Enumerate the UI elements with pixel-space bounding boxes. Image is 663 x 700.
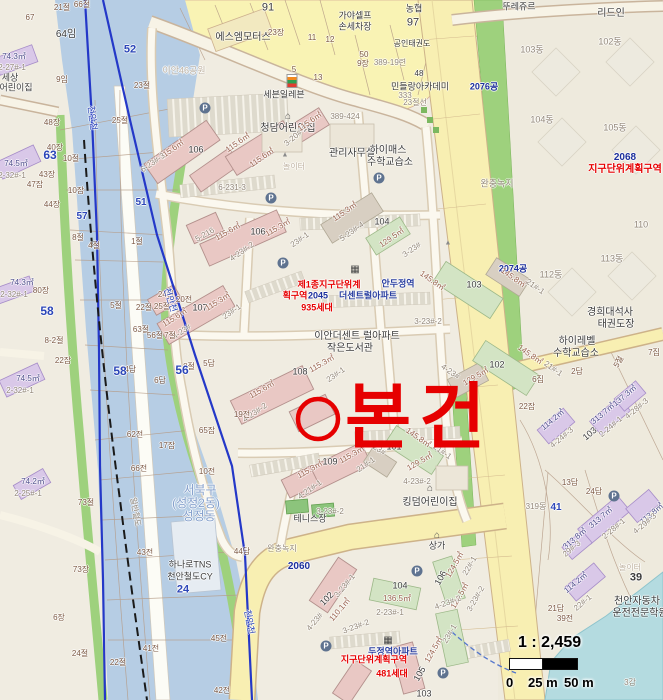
map-label: 공인태권도 [394,40,431,48]
map-label: 39 [630,573,642,584]
map-label: 더센트럴아파트 [339,292,397,301]
map-label: 2060 [288,562,310,572]
seven-eleven-icon [287,74,298,88]
map-label: 2076공 [470,83,498,92]
map-label: 9임 [56,76,68,84]
map-label: 319동 [526,503,547,511]
map-label: 104동 [530,116,553,125]
map-label: 2-23#-1 [376,609,404,617]
map-label: 천안천 [86,105,98,131]
map-label: 2-27#-1 [0,64,26,72]
parking-icon: P [200,103,211,114]
map-label: 하이레벨 [559,337,596,347]
map-label: 22잡 [55,357,71,365]
map-label: 4절 [88,242,100,250]
map-canvas[interactable]: 9166절21절6764임에스엠모터스가야셀프손세차장농협97뚜레쥬르리드인공인… [0,0,663,700]
map-label: 2045 [308,292,328,301]
house-icon: ⌂ [434,531,440,541]
map-label: 7절 [164,332,176,340]
building-icon: ▦ [350,265,359,275]
map-label: 20전 [176,296,192,304]
map-label: 11 [308,34,316,42]
map-label: 64임 [56,30,76,40]
map-label: 13답 [562,479,578,487]
map-label: 천안철도CY [167,573,213,582]
scale-tick-25: 25 m [528,675,558,690]
map-label: 어린이집 [0,84,33,93]
map-label: 108 [292,368,307,377]
map-label: 58 [113,365,126,377]
house-icon: ⌂ [285,112,291,122]
map-label: 12 [326,36,335,44]
house-icon: ⌂ [427,484,433,494]
scale-tick-0: 0 [506,675,513,690]
scale-segment-white [509,658,543,670]
map-label: 21절 [54,4,70,12]
map-label: 25절 [112,117,128,125]
map-label: 리드인 [597,9,625,19]
subject-annotation: 본건 [345,378,585,460]
map-label: 389-424 [330,113,359,121]
map-label: 24 [177,585,189,596]
map-label: 102 [489,361,504,370]
parking-icon: P [438,668,449,679]
map-label: 5절 [110,302,122,310]
map-label: 74.3㎡ [2,53,26,61]
map-label: 56 [175,364,188,376]
map-label: 5 [292,66,296,74]
map-label: 43전 [137,549,153,557]
map-label: 놀이터 [283,163,305,171]
map-label: 63 [43,149,56,161]
map-label: 가야셀프 [338,12,371,21]
map-label: 80장 [33,287,49,295]
map-label: 2답 [571,368,583,376]
map-label: 73장 [73,566,89,574]
map-label: 2-25#-1 [14,490,42,498]
map-label: 17잡 [159,442,175,450]
map-label: 104 [374,218,389,227]
map-label: 102동 [598,38,621,47]
map-label: 66전 [131,465,147,473]
map-label: 106 [188,146,203,155]
map-label: 22절 [136,304,152,312]
map-label: 58 [40,305,53,317]
map-label: 24절 [72,650,88,658]
map-label: 74.5㎡ [4,160,28,168]
map-label: 56절 [147,332,163,340]
map-label: 안두정역 [381,280,414,289]
playground-icon: ▲ [445,240,452,247]
map-label: 73절 [78,499,94,507]
map-label: 상가 [429,542,446,551]
map-label: 481세대 [376,670,408,679]
map-label: 74.2㎡ [21,478,45,486]
map-label: 지구단위계획구역 [588,165,662,175]
map-label: 하이매스 [370,146,407,156]
map-label: 22절 [110,659,126,667]
map-label: 103 [416,690,431,699]
map-label: 39전 [557,615,573,623]
map-label: 경희대석사 [587,308,633,318]
map-label: 6-231-3 [218,184,246,192]
map-label: 태권도장 [598,320,635,330]
map-label: 24답 [586,488,602,496]
map-label: 66절 [74,1,90,9]
map-label: 136.5㎡ [383,595,411,603]
map-label: 389-19련 [374,59,406,67]
map-label: 109 [322,458,337,467]
map-label: 48장 [44,119,60,127]
map-label: 113동 [601,255,624,264]
map-label: 91 [262,3,274,14]
map-label: 44장 [44,201,60,209]
map-label: 103동 [520,46,543,55]
parking-icon: P [374,173,385,184]
map-label: 19전 [234,411,250,419]
parking-icon: P [321,641,332,652]
map-label: 운전전문학원 [612,609,663,619]
parking-icon: P [278,258,289,269]
map-label: 세상 [2,74,19,83]
map-label: 2068 [614,153,636,163]
map-label: 하나로TNS [169,561,212,570]
map-label: 서북구 [183,484,216,496]
map-label: 8-2절 [45,337,64,345]
map-label: 41 [550,503,561,513]
map-label: 106 [250,228,265,237]
map-label: 6장 [53,614,65,622]
map-label: 킹덤어린이집 [402,498,457,508]
map-label: 62전 [127,431,143,439]
map-label: 45전 [211,635,227,643]
map-label: 50 [360,51,369,59]
map-label: 수학교습소 [553,349,599,359]
map-label: 3-23#-2 [414,318,442,326]
map-label: 2-32#-1 [6,387,34,395]
map-label: 에스엠모터스 [215,33,270,43]
map-label: 10전 [199,468,215,476]
map-label: 41전 [143,645,159,653]
map-label: 성정동 [182,510,215,522]
map-label: 51 [135,198,146,208]
map-label: 천안자동차 [614,597,660,607]
playground-icon: ▲ [282,152,289,159]
map-label: 42전 [214,687,230,695]
map-label: (성정2동) [172,497,220,509]
map-label: 8절 [72,234,84,242]
map-label: 제1종지구단위계 [298,281,361,290]
map-label: 손세차장 [338,23,371,32]
map-label: 작은도서관 [327,344,373,354]
map-label: 이안더센트 럴아파트 [314,332,400,342]
map-label: 21답 [548,605,564,613]
parking-icon: P [266,193,277,204]
scale-ratio: 1 : 2,459 [518,634,581,652]
map-label: 112동 [540,271,563,280]
map-label: 104 [392,582,407,591]
map-label: 44답 [234,548,250,556]
map-label: 뚜레쥬르 [502,3,535,12]
map-label: 완충녹지 [267,545,296,553]
map-label: 43장 [39,171,55,179]
map-label: 935세대 [301,304,333,313]
map-label: 74.3㎡ [10,279,34,287]
map-label: 이안46공원 [162,67,205,76]
map-label: 74.5㎡ [16,375,40,383]
map-label: 52 [124,45,136,56]
map-label: 57 [76,212,87,222]
map-label: 23절선 [403,99,427,107]
map-label: 110 [634,221,648,230]
map-label: 47잡 [27,181,43,189]
map-label: 지구단위계획구역 [341,656,407,665]
map-label: 13 [314,74,323,82]
scale-tick-50: 50 m [564,675,594,690]
map-label: 97 [407,18,419,29]
parking-icon: P [609,491,620,502]
building-icon: ▦ [383,636,392,646]
map-label: 5답 [203,360,215,368]
map-label: 세븐일레븐 [263,91,304,100]
map-label: 9장 [357,60,369,68]
map-label: 103 [466,281,481,290]
map-label: 완충녹지 [480,180,513,189]
map-label: 10잡 [68,187,84,195]
map-label: 테니스장 [293,515,326,524]
map-label: 23장 [268,29,284,37]
map-label: 67 [26,14,35,22]
map-label: 7집 [648,349,660,357]
scale-segment-black [543,658,578,670]
map-label: 농협 [406,5,423,14]
map-label: 1절 [131,238,143,246]
map-label: 65잡 [199,427,215,435]
map-label: 23절 [134,82,150,90]
map-label: 6답 [154,377,166,385]
map-label: 48 [415,70,424,78]
parking-icon: P [412,566,423,577]
map-label: 10절 [63,155,79,163]
map-label: 105동 [603,124,626,133]
map-label: 2-32#-1 [0,291,28,299]
map-label: 획구역 [283,292,308,301]
map-label: 2-32#-1 [0,172,26,180]
map-label: 3감 [624,679,636,687]
map-label: 수학교습소 [367,158,413,168]
